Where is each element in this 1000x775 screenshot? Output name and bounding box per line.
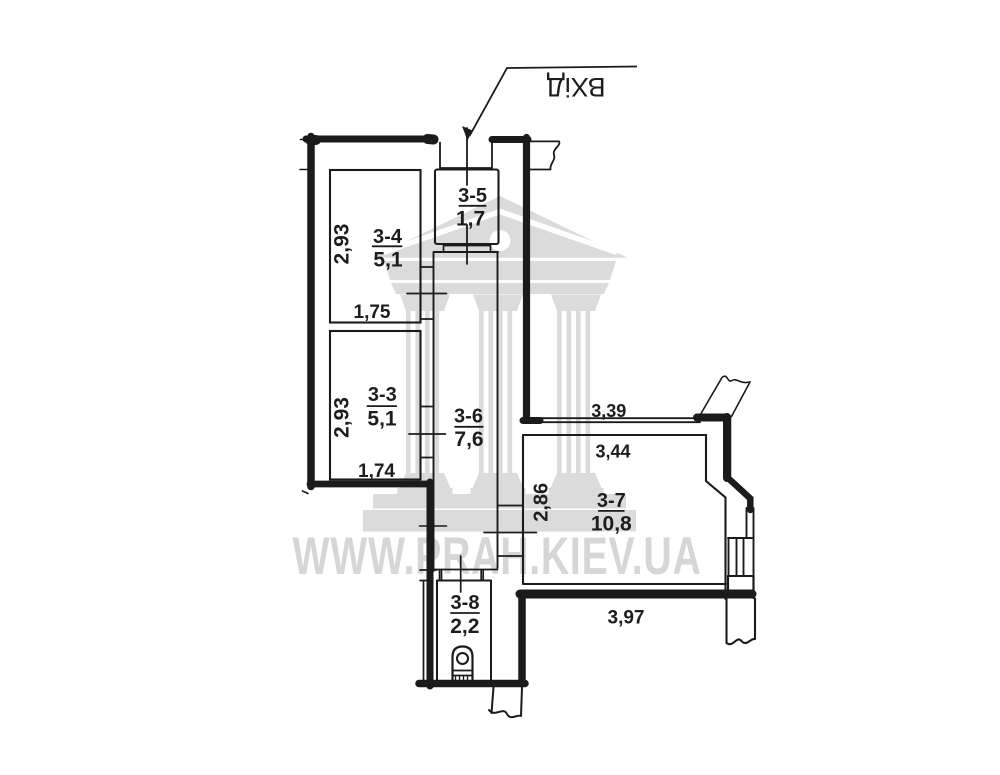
svg-text:2,93: 2,93: [331, 224, 354, 265]
svg-text:10,8: 10,8: [591, 512, 632, 535]
svg-text:3-8: 3-8: [451, 592, 480, 614]
svg-text:3-6: 3-6: [454, 406, 483, 428]
svg-text:3,44: 3,44: [595, 441, 630, 461]
svg-text:1,75: 1,75: [354, 302, 391, 323]
svg-text:5,1: 5,1: [373, 249, 403, 272]
svg-text:2,93: 2,93: [330, 397, 353, 438]
svg-text:1,7: 1,7: [456, 207, 485, 230]
svg-text:3-3: 3-3: [368, 384, 397, 406]
svg-text:2,2: 2,2: [450, 615, 479, 638]
svg-text:5,1: 5,1: [367, 407, 397, 430]
svg-text:3,97: 3,97: [608, 608, 645, 629]
svg-text:ВХіД: ВХіД: [546, 72, 605, 102]
svg-text:1,74: 1,74: [358, 461, 395, 482]
svg-text:2,86: 2,86: [531, 483, 553, 522]
svg-text:3,39: 3,39: [591, 401, 626, 421]
svg-text:3-7: 3-7: [597, 490, 626, 512]
svg-text:3-4: 3-4: [373, 226, 403, 248]
svg-text:7,6: 7,6: [454, 428, 483, 451]
svg-text:3-5: 3-5: [458, 185, 487, 207]
